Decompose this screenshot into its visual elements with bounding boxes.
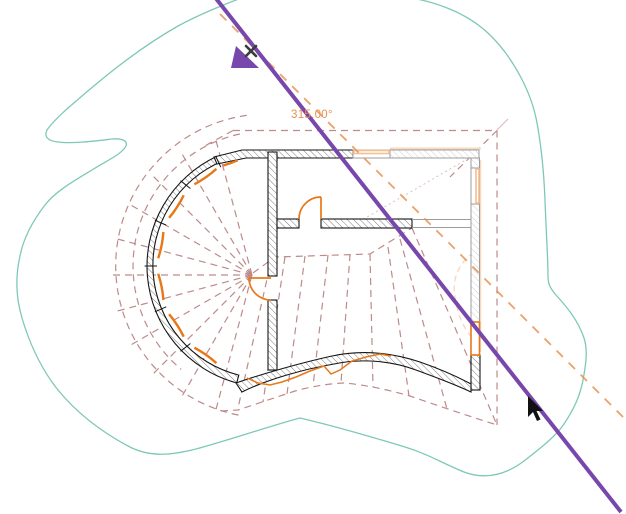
wall-opening-lines bbox=[412, 220, 471, 228]
windows[interactable] bbox=[145, 150, 480, 363]
roof-edge-top-left bbox=[203, 131, 233, 148]
wall-interior-vertical-lower[interactable] bbox=[268, 300, 277, 370]
angle-readout: 315.00° bbox=[291, 109, 333, 121]
wall-interior-vertical-upper[interactable] bbox=[268, 152, 277, 276]
roof-eave-lower bbox=[221, 383, 497, 425]
snap-x-marker-icon bbox=[246, 46, 256, 56]
wall-right-bottom[interactable] bbox=[471, 355, 480, 390]
site-contour[interactable] bbox=[17, 0, 586, 476]
door-vertical-wall[interactable] bbox=[249, 278, 271, 300]
window-right-upper[interactable] bbox=[471, 168, 480, 204]
window-top[interactable] bbox=[353, 150, 390, 158]
door-middle-wall[interactable] bbox=[299, 197, 321, 219]
wall-middle-left[interactable] bbox=[277, 219, 299, 228]
cad-canvas[interactable]: 315.00° bbox=[0, 0, 626, 514]
wall-top-gray[interactable] bbox=[390, 150, 479, 158]
tower-curved-wall[interactable] bbox=[147, 156, 239, 383]
angle-guide bbox=[220, 14, 626, 420]
